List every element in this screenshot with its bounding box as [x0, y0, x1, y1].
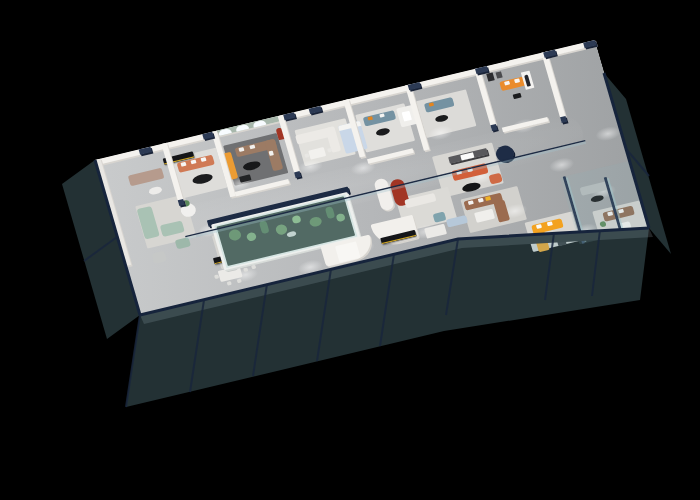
sofa-pillow: [269, 151, 274, 156]
showroom-render: [0, 0, 700, 500]
glass-mullion: [84, 237, 117, 261]
navy-wall-cap: [490, 124, 497, 131]
navy-wall-cap: [294, 171, 301, 178]
glass-mullion: [126, 315, 140, 407]
navy-wall-cap: [178, 199, 185, 206]
navy-wall-cap: [560, 116, 567, 123]
floorplan: [95, 40, 649, 348]
dark-desk-chair: [557, 239, 567, 246]
